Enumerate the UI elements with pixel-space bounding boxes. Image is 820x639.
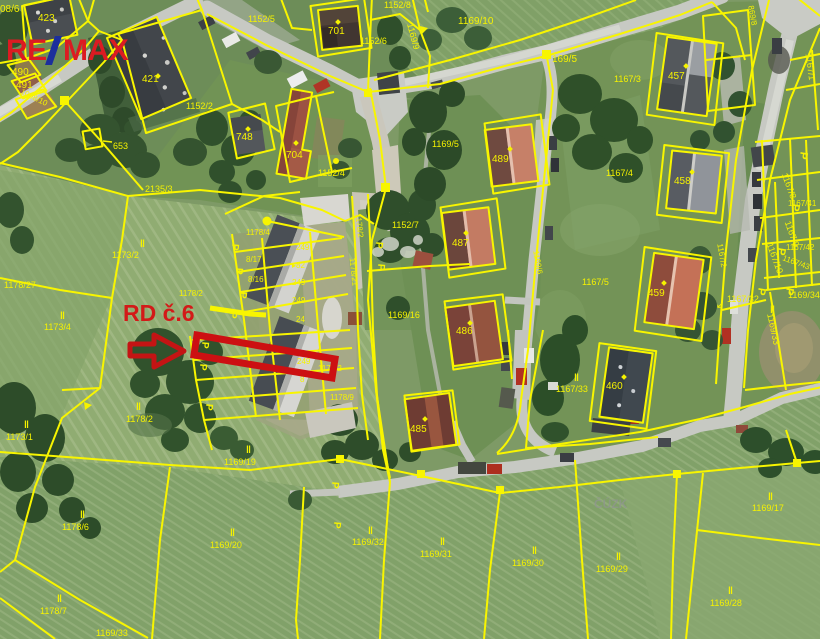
svg-text:‖: ‖ [246, 445, 251, 456]
svg-text:1178/2: 1178/2 [126, 414, 153, 424]
svg-text:1167/33: 1167/33 [556, 384, 588, 394]
svg-text:249: 249 [296, 243, 310, 252]
svg-text:‖: ‖ [24, 420, 29, 431]
svg-text:1178/27: 1178/27 [4, 280, 36, 290]
svg-text:RD č.6: RD č.6 [123, 300, 195, 326]
svg-text:748: 748 [236, 132, 253, 143]
svg-text:460: 460 [606, 381, 623, 392]
svg-text:‖: ‖ [368, 526, 373, 537]
svg-text:653: 653 [113, 141, 128, 151]
svg-text:1169/17: 1169/17 [752, 503, 784, 513]
svg-text:489: 489 [492, 154, 509, 165]
svg-text:RE: RE [6, 34, 47, 67]
svg-text:1169/19: 1169/19 [224, 457, 256, 467]
svg-text:1152/2: 1152/2 [186, 101, 213, 111]
svg-text:1167/4: 1167/4 [606, 168, 633, 178]
svg-text:P: P [233, 267, 245, 275]
svg-text:423: 423 [38, 13, 55, 24]
svg-text:‖: ‖ [574, 373, 579, 384]
svg-text:1152/5: 1152/5 [248, 14, 275, 24]
svg-text:‖: ‖ [770, 305, 775, 316]
svg-text:1167/32: 1167/32 [727, 294, 759, 304]
svg-text:‖: ‖ [57, 594, 62, 605]
svg-text:1178/6: 1178/6 [62, 522, 89, 532]
svg-text:1167/42: 1167/42 [786, 243, 815, 252]
svg-text:P: P [237, 291, 249, 299]
svg-text:24: 24 [296, 315, 305, 324]
svg-text:1169/5: 1169/5 [432, 139, 459, 149]
svg-text:485: 485 [410, 424, 427, 435]
svg-text:458: 458 [674, 176, 691, 187]
svg-text:1152/7: 1152/7 [392, 220, 419, 230]
svg-text:P: P [199, 341, 211, 349]
svg-text:704: 704 [286, 150, 303, 161]
svg-text:1169/33: 1169/33 [96, 628, 128, 638]
svg-text:P: P [373, 241, 385, 249]
svg-text:08/6: 08/6 [0, 4, 20, 15]
svg-text:‖: ‖ [60, 311, 65, 322]
svg-text:‖: ‖ [768, 492, 773, 503]
svg-text:1169/16: 1169/16 [388, 310, 420, 320]
svg-text:249: 249 [292, 278, 306, 287]
svg-text:1152/6: 1152/6 [360, 36, 387, 46]
svg-text:1167/5: 1167/5 [582, 277, 609, 287]
svg-text:ČÚZK: ČÚZK [594, 496, 628, 511]
svg-text:↙: ↙ [716, 300, 724, 311]
svg-text:1152/8: 1152/8 [384, 0, 411, 10]
svg-text:1178/9: 1178/9 [330, 393, 354, 402]
svg-text:‖: ‖ [140, 239, 145, 250]
svg-text:487: 487 [452, 238, 469, 249]
svg-text:1169/30: 1169/30 [512, 558, 544, 568]
svg-text:▸82: ▸82 [292, 261, 305, 270]
svg-text:1178/2: 1178/2 [179, 289, 203, 298]
svg-text:P: P [229, 243, 241, 251]
svg-text:P: P [331, 521, 343, 529]
svg-text:‖: ‖ [616, 552, 621, 563]
svg-text:‖: ‖ [136, 402, 141, 413]
svg-text:1178/4: 1178/4 [246, 228, 270, 237]
svg-text:459: 459 [648, 288, 665, 299]
svg-text:P: P [203, 403, 215, 411]
svg-text:1169/29: 1169/29 [596, 564, 628, 574]
svg-text:MAX: MAX [63, 34, 129, 67]
svg-text:2135/3: 2135/3 [145, 184, 173, 194]
svg-text:457: 457 [668, 71, 685, 82]
svg-text:1173/1: 1173/1 [6, 432, 33, 442]
svg-text:486: 486 [456, 326, 473, 337]
svg-text:1169/20: 1169/20 [210, 540, 242, 550]
svg-text:249: 249 [292, 296, 306, 305]
svg-text:‖: ‖ [80, 510, 85, 521]
svg-text:‖: ‖ [440, 537, 445, 548]
svg-text:8/17: 8/17 [246, 255, 262, 264]
svg-text:1167/3: 1167/3 [614, 74, 641, 84]
svg-text:1152/4: 1152/4 [318, 168, 345, 178]
svg-text:1169/31: 1169/31 [420, 549, 452, 559]
svg-text:1169/32: 1169/32 [352, 537, 384, 547]
svg-text:8/16: 8/16 [248, 275, 264, 284]
svg-text:P: P [197, 363, 209, 371]
svg-text:1178/7: 1178/7 [40, 606, 67, 616]
svg-text:1173/2: 1173/2 [112, 250, 139, 260]
svg-text:169/5: 169/5 [552, 54, 577, 65]
svg-text:‖: ‖ [532, 546, 537, 557]
svg-text:P: P [375, 263, 387, 271]
svg-text:701: 701 [328, 26, 345, 37]
svg-text:P: P [329, 481, 341, 489]
svg-text:1169/28: 1169/28 [710, 598, 742, 608]
svg-text:249: 249 [297, 357, 311, 366]
svg-text:490: 490 [12, 67, 29, 78]
svg-text:‖: ‖ [230, 528, 235, 539]
svg-text:P: P [227, 311, 239, 319]
svg-text:‖: ‖ [728, 586, 733, 597]
svg-text:1169/10: 1169/10 [458, 16, 494, 27]
svg-text:1173/4: 1173/4 [44, 322, 71, 332]
